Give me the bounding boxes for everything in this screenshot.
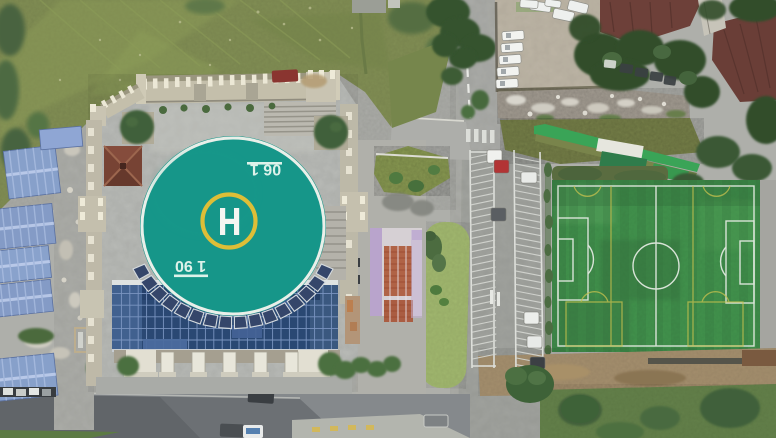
svg-text:06 1: 06 1 [250, 160, 281, 177]
svg-text:1 90: 1 90 [175, 257, 206, 274]
